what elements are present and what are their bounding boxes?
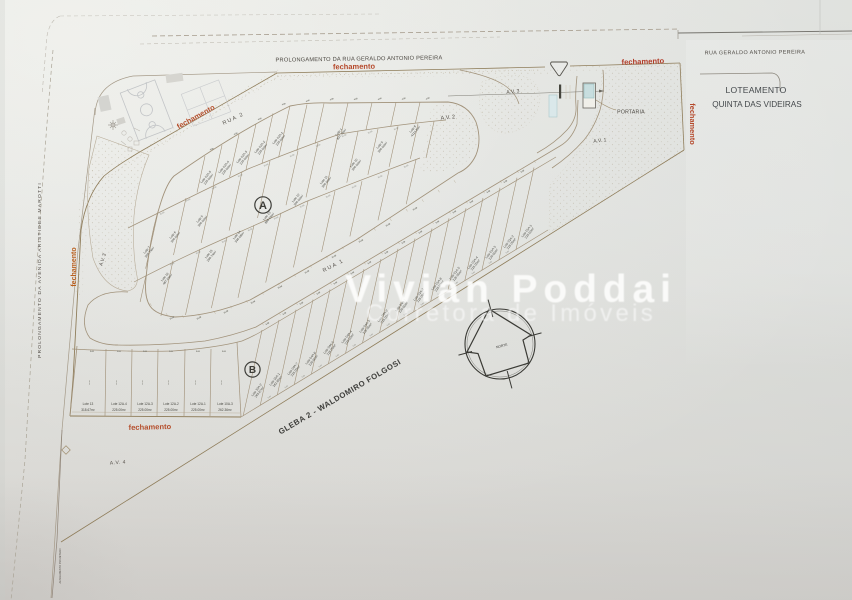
svg-text:225.00m²: 225.00m² [164,408,177,412]
svg-text:25.00: 25.00 [116,380,118,385]
svg-text:25.00: 25.00 [168,380,170,385]
svg-text:225.00m²: 225.00m² [191,408,204,412]
svg-text:Lote 10A-3: Lote 10A-3 [217,402,233,406]
svg-text:Lote 12A-1: Lote 12A-1 [190,402,206,406]
svg-text:Lote 13: Lote 13 [83,402,94,406]
svg-text:PROLONGAMENTO DA AVENIDA ARIST: PROLONGAMENTO DA AVENIDA ARISTIDES MAROT… [37,182,43,358]
svg-text:fechamento: fechamento [71,247,78,286]
svg-text:A.V. 4: A.V. 4 [110,459,127,466]
svg-text:fechamento: fechamento [688,103,697,145]
svg-text:B: B [249,365,256,376]
svg-text:QUINTA DAS VIDEIRAS: QUINTA DAS VIDEIRAS [712,100,802,109]
svg-text:262.36m²: 262.36m² [218,408,231,412]
svg-text:225.00m²: 225.00m² [138,408,151,412]
svg-text:Lote 12A-2: Lote 12A-2 [163,402,179,406]
svg-text:fechamento: fechamento [333,62,376,72]
svg-text:225.00m²: 225.00m² [112,408,125,412]
svg-text:25.00: 25.00 [221,380,223,385]
svg-text:RUA GERALDO ANTONIO PEREIRA: RUA GERALDO ANTONIO PEREIRA [705,50,806,57]
svg-text:Lote 12A-3: Lote 12A-3 [137,402,153,406]
svg-text:25.00: 25.00 [89,380,91,385]
svg-text:318.67m²: 318.67m² [81,408,94,412]
svg-text:A: A [259,200,267,212]
svg-text:fechamento: fechamento [621,56,664,66]
svg-text:25.00: 25.00 [195,380,197,385]
svg-text:Lote 12A-4: Lote 12A-4 [111,402,127,406]
svg-text:ALINHAMENTO PROJETADO: ALINHAMENTO PROJETADO [58,548,62,583]
svg-text:LOTEAMENTO: LOTEAMENTO [725,85,786,95]
svg-text:fechamento: fechamento [128,422,171,432]
svg-text:Corretora de Imóveis: Corretora de Imóveis [366,300,656,327]
svg-text:PORTARIA: PORTARIA [617,110,645,116]
svg-text:25.00: 25.00 [142,380,144,385]
